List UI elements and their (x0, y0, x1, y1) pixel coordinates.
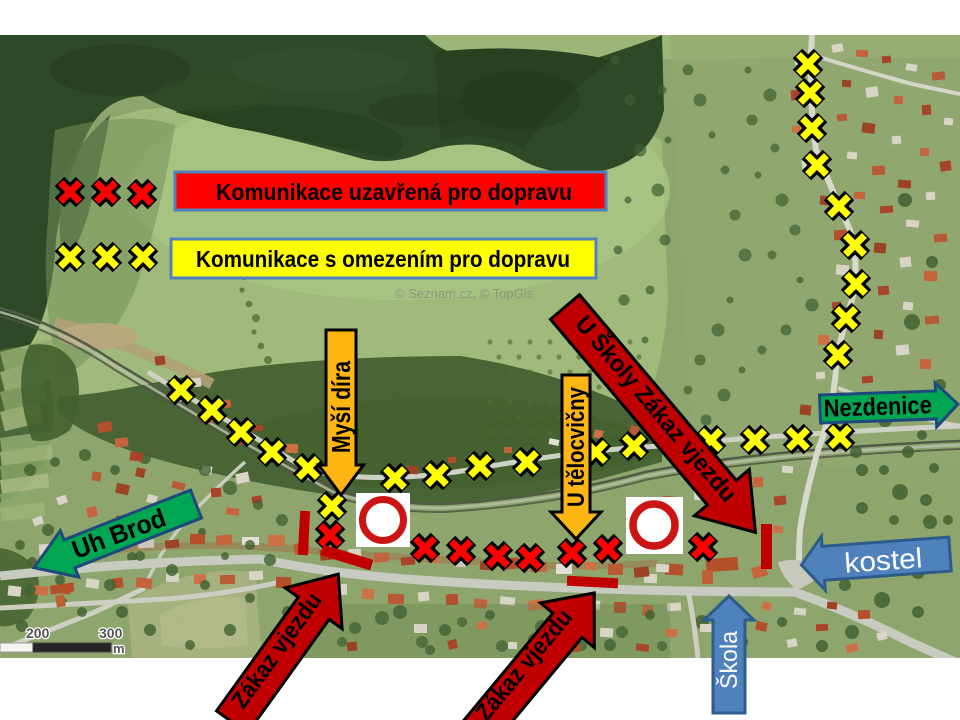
svg-text:Nezdenice: Nezdenice (823, 391, 932, 423)
svg-text:300: 300 (99, 625, 123, 641)
svg-text:U tělocvičny: U tělocvičny (563, 386, 590, 507)
svg-text:m: m (113, 641, 125, 656)
svg-text:200: 200 (26, 625, 50, 641)
svg-text:Komunikace uzavřená pro doprav: Komunikace uzavřená pro dopravu (216, 179, 572, 205)
svg-text:Myší díra: Myší díra (326, 361, 356, 453)
svg-text:© Seznam.cz, © TopGis: © Seznam.cz, © TopGis (395, 286, 534, 301)
svg-text:Škola: Škola (715, 630, 743, 689)
svg-text:kostel: kostel (843, 542, 923, 578)
svg-text:Komunikace s omezením pro dopr: Komunikace s omezením pro dopravu (196, 246, 570, 272)
